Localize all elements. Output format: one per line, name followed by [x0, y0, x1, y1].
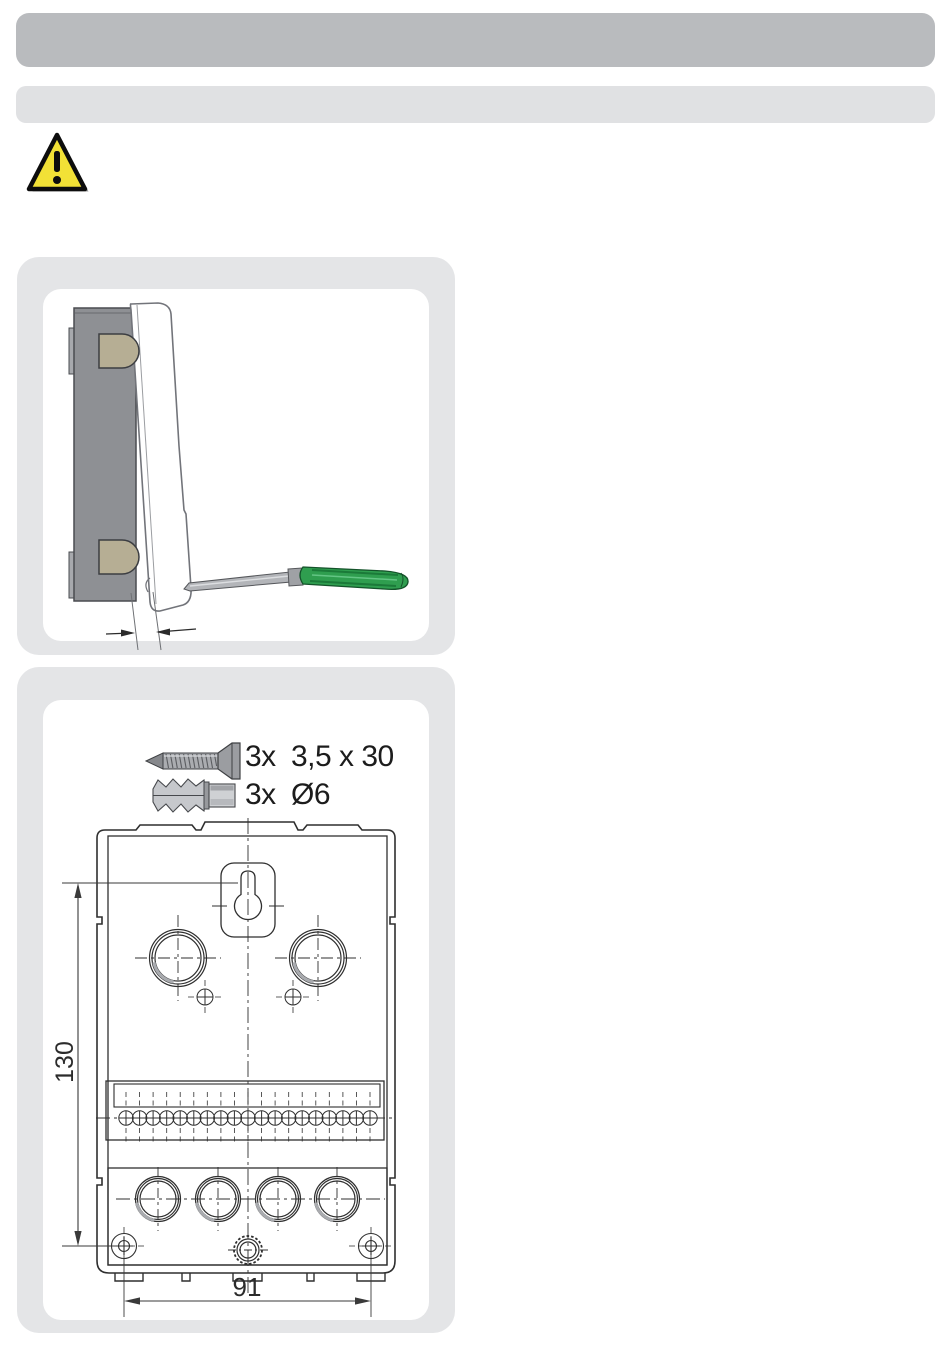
- warning-triangle-icon: [22, 130, 94, 196]
- screw-qty: 3x: [245, 740, 291, 774]
- screw-spec: 3,5 x 30: [291, 740, 394, 774]
- manual-page: 3x 3,5 x 30 3x Ø6 130 91: [0, 0, 950, 1360]
- dimension-height-label: 130: [43, 1039, 87, 1085]
- plug-qty: 3x: [245, 778, 291, 812]
- header-bar-secondary: [16, 86, 935, 123]
- cover-removal-illustration: [17, 257, 455, 655]
- hardware-row-screw: 3x 3,5 x 30: [245, 740, 394, 774]
- hardware-row-plug: 3x Ø6: [245, 778, 330, 812]
- header-bar-primary: [16, 13, 935, 67]
- dimension-width-label: 91: [222, 1272, 272, 1303]
- plug-spec: Ø6: [291, 778, 330, 812]
